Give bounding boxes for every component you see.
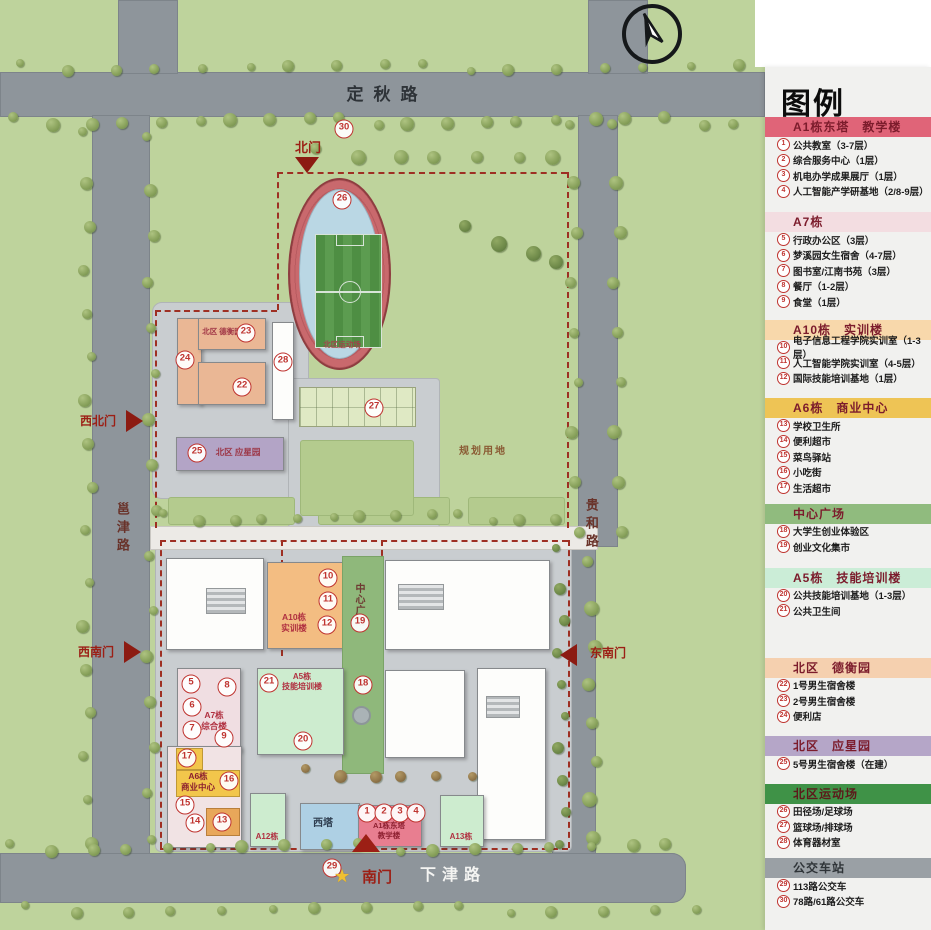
legend-item-12: 12国际技能培训基地（1层）: [765, 371, 931, 387]
compass-north-icon: [622, 4, 682, 64]
tree-icon: [78, 751, 88, 761]
tree-icon: [607, 425, 621, 439]
tree-icon: [163, 843, 173, 853]
tree-icon: [586, 717, 598, 729]
road-yongjin: [92, 115, 150, 857]
legend-item-label: 学校卫生所: [793, 419, 841, 433]
road-label-xiajin: 下津路: [398, 866, 508, 887]
legend-item-number: 25: [777, 757, 790, 770]
legend-item-number: 30: [777, 895, 790, 908]
legend-item-number: 21: [777, 604, 790, 617]
tree-icon: [565, 277, 576, 288]
tree-icon: [396, 847, 405, 856]
tree-icon: [282, 60, 294, 72]
label-yingxing: 北区 应星园: [208, 447, 268, 458]
legend-section: A10栋 实训楼10电子信息工程学院实训室（1-3层）11人工智能学院实训室（4…: [765, 320, 931, 387]
tree-icon: [78, 127, 87, 136]
legend-item-6: 6梦溪园女生宿舍（4-7层）: [765, 248, 931, 264]
tree-icon: [427, 151, 440, 164]
map-marker-21: 21: [260, 674, 279, 693]
map-marker-14: 14: [186, 814, 205, 833]
tree-icon: [468, 772, 477, 781]
tree-icon: [418, 59, 427, 68]
tree-icon: [471, 151, 483, 163]
tree-icon: [491, 236, 507, 252]
tree-icon: [351, 150, 366, 165]
map-marker-27: 27: [365, 399, 384, 418]
tree-icon: [147, 835, 156, 844]
tree-icon: [557, 680, 566, 689]
legend-item-label: 便利店: [793, 709, 822, 723]
tree-icon: [510, 116, 521, 127]
tree-icon: [545, 906, 557, 918]
map-marker-12: 12: [318, 616, 337, 635]
legend-item-label: 公共卫生间: [793, 604, 841, 618]
legend-item-number: 10: [777, 341, 790, 354]
tree-icon: [80, 664, 92, 676]
tree-icon: [293, 514, 302, 523]
legend-section-header: A5栋 技能培训楼: [765, 568, 931, 588]
map-marker-8: 8: [218, 678, 237, 697]
legend-item-number: 23: [777, 694, 790, 707]
tree-icon: [658, 111, 670, 123]
legend-item-number: 17: [777, 481, 790, 494]
legend-item-label: 5号男生宿舍楼（在建）: [793, 757, 893, 771]
tree-icon: [481, 116, 493, 128]
tree-icon: [612, 327, 623, 338]
tree-icon: [638, 63, 647, 72]
legend-item-10: 10电子信息工程学院实训室（1-3层）: [765, 340, 931, 356]
tree-icon: [394, 150, 408, 164]
tree-icon: [144, 551, 154, 561]
tree-icon: [426, 844, 439, 857]
map-marker-26: 26: [333, 191, 352, 210]
road-label-guihe: 贵和路: [582, 490, 599, 560]
tree-icon: [589, 112, 603, 126]
tree-icon: [78, 265, 89, 276]
map-marker-6: 6: [183, 698, 202, 717]
tree-icon: [728, 119, 738, 129]
legend-item-9: 9食堂（1层）: [765, 294, 931, 310]
boundary-south-top: [160, 540, 568, 542]
tree-icon: [600, 63, 610, 73]
tree-icon: [331, 60, 342, 71]
legend-item-label: 便利超市: [793, 434, 831, 448]
tree-icon: [247, 63, 255, 71]
tree-icon: [526, 246, 541, 261]
building-white-e2: [477, 668, 546, 840]
tree-icon: [330, 513, 338, 521]
legend-item-label: 行政办公区（3层）: [793, 233, 874, 247]
tree-icon: [142, 277, 153, 288]
map-marker-18: 18: [354, 676, 373, 695]
tree-icon: [82, 309, 92, 319]
legend-section: A6栋 商业中心13学校卫生所14便利超市15菜鸟驿站16小吃街17生活超市: [765, 398, 931, 496]
legend-item-number: 11: [777, 356, 790, 369]
legend-item-number: 13: [777, 419, 790, 432]
tree-icon: [144, 696, 156, 708]
boundary-south-east: [568, 540, 570, 848]
legend-item-17: 17生活超市: [765, 480, 931, 496]
label-a5: A5栋 技能培训楼: [276, 672, 328, 693]
legend-item-26: 26田径场/足球场: [765, 804, 931, 820]
map-marker-24: 24: [176, 351, 195, 370]
basketball-courts: [299, 387, 416, 427]
legend-title: 图例: [781, 79, 931, 117]
legend-item-label: 综合服务中心（1层）: [793, 153, 884, 167]
gate-north-icon: [295, 157, 319, 173]
football-field: [315, 234, 382, 348]
tree-icon: [85, 707, 96, 718]
legend-item-5: 5行政办公区（3层）: [765, 232, 931, 248]
legend-item-label: 78路/61路公交车: [793, 894, 864, 908]
legend-item-16: 16小吃街: [765, 465, 931, 481]
tree-icon: [123, 907, 134, 918]
legend-item-label: 公共教室（3-7层）: [793, 138, 873, 152]
tree-icon: [587, 842, 596, 851]
legend-item-label: 田径场/足球场: [793, 804, 853, 818]
tree-icon: [159, 509, 167, 517]
legend-section: 北区运动场26田径场/足球场27篮球场/排球场28体育器材室: [765, 784, 931, 851]
legend-item-label: 大学生创业体验区: [793, 524, 869, 538]
tree-icon: [308, 902, 320, 914]
tree-icon: [598, 906, 609, 917]
legend-item-label: 梦溪园女生宿舍（4-7层）: [793, 248, 902, 262]
legend-item-2: 2综合服务中心（1层）: [765, 153, 931, 169]
legend-item-label: 创业文化集市: [793, 540, 850, 554]
legend-item-number: 14: [777, 435, 790, 448]
legend-item-3: 3机电办学成果展厅（1层）: [765, 168, 931, 184]
legend-item-28: 28体育器材室: [765, 835, 931, 851]
road-label-dingqiu: 定秋路: [322, 84, 452, 106]
legend-item-label: 公共技能培训基地（1-3层）: [793, 588, 911, 602]
tree-icon: [549, 255, 563, 269]
legend-item-label: 1号男生宿舍楼: [793, 678, 855, 692]
tree-icon: [146, 459, 158, 471]
legend-item-label: 国际技能培训基地（1层）: [793, 371, 903, 385]
map-marker-9: 9: [215, 729, 234, 748]
legend-item-label: 113路公交车: [793, 879, 846, 893]
tree-icon: [46, 118, 60, 132]
tree-icon: [361, 902, 372, 913]
legend-item-number: 28: [777, 836, 790, 849]
tree-icon: [551, 64, 562, 75]
gate-label-southeast: 东南门: [582, 646, 634, 662]
legend-item-number: 16: [777, 466, 790, 479]
legend-item-24: 24便利店: [765, 709, 931, 725]
legend-item-label: 人工智能学院实训室（4-5层）: [793, 356, 921, 370]
legend-item-number: 8: [777, 280, 790, 293]
legend-item-number: 29: [777, 879, 790, 892]
tree-icon: [165, 906, 175, 916]
boundary-north-top: [277, 172, 567, 174]
tree-icon: [151, 369, 160, 378]
tree-icon: [507, 909, 515, 917]
tree-icon: [627, 839, 640, 852]
tree-icon: [84, 221, 96, 233]
legend-item-label: 菜鸟驿站: [793, 450, 831, 464]
legend-section-header: 北区 应星园: [765, 736, 931, 756]
tree-icon: [551, 115, 561, 125]
tree-icon: [591, 756, 602, 767]
tree-icon: [650, 905, 660, 915]
tree-icon: [512, 843, 523, 854]
tree-icon: [565, 120, 574, 129]
label-xita: 西塔: [308, 817, 338, 830]
area-label-track: 北区运动场: [316, 340, 368, 350]
legend-section: 公交车站29113路公交车3078路/61路公交车: [765, 858, 931, 909]
legend-item-label: 篮球场/排球场: [793, 820, 853, 834]
legend-item-13: 13学校卫生所: [765, 418, 931, 434]
tree-icon: [699, 120, 710, 131]
gate-northwest-icon: [126, 410, 143, 432]
legend-section-header: A7栋: [765, 212, 931, 232]
tree-icon: [618, 112, 631, 125]
page-corner: [755, 0, 931, 67]
tree-icon: [142, 788, 152, 798]
tree-icon: [552, 544, 560, 552]
tree-icon: [584, 601, 599, 616]
tree-icon: [80, 177, 93, 190]
legend-item-label: 餐厅（1-2层）: [793, 279, 854, 293]
tree-icon: [144, 184, 157, 197]
tree-icon: [614, 226, 627, 239]
legend-item-27: 27篮球场/排球场: [765, 819, 931, 835]
tree-icon: [230, 515, 241, 526]
tree-icon: [88, 844, 100, 856]
map-marker-13: 13: [213, 813, 232, 832]
tree-icon: [555, 840, 564, 849]
tree-icon: [301, 764, 310, 773]
road-stub-topleft: [118, 0, 178, 74]
boundary-north-west: [155, 310, 157, 528]
tree-icon: [198, 64, 207, 73]
tree-icon: [616, 526, 628, 538]
map-marker-23: 23: [237, 324, 256, 343]
tree-icon: [692, 905, 701, 914]
tree-icon: [45, 845, 58, 858]
map-marker-30: 30: [335, 120, 354, 139]
gate-label-north: 北门: [283, 140, 333, 157]
tree-icon: [612, 476, 625, 489]
tree-icon: [400, 117, 414, 131]
tree-icon: [78, 394, 91, 407]
legend-item-15: 15菜鸟驿站: [765, 449, 931, 465]
legend-item-label: 2号男生宿舍楼: [793, 694, 855, 708]
tree-icon: [616, 377, 626, 387]
legend-item-number: 3: [777, 169, 790, 182]
plaza-fountain: [352, 706, 371, 725]
road-label-yongjin: 邕津路: [113, 494, 130, 564]
stairs-1: [206, 588, 246, 614]
map-marker-22: 22: [233, 378, 252, 397]
legend-item-23: 232号男生宿舍楼: [765, 693, 931, 709]
legend-section: 中心广场18大学生创业体验区19创业文化集市: [765, 504, 931, 555]
stairs-2: [398, 584, 444, 610]
label-a10: A10栋 实训楼: [278, 612, 310, 634]
legend-item-number: 4: [777, 185, 790, 198]
tree-icon: [142, 413, 155, 426]
map-marker-11: 11: [319, 592, 338, 611]
goal-box-top: [336, 234, 364, 246]
tree-icon: [550, 514, 561, 525]
tree-icon: [607, 119, 617, 129]
tree-icon: [390, 510, 401, 521]
tree-icon: [427, 509, 437, 519]
map-marker-28: 28: [274, 353, 293, 372]
legend-item-number: 22: [777, 679, 790, 692]
legend-item-11: 11人工智能学院实训室（4-5层）: [765, 355, 931, 371]
tree-icon: [571, 227, 583, 239]
label-a13: A13栋: [446, 832, 476, 842]
gate-south-icon: [352, 834, 380, 852]
legend-item-label: 机电办学成果展厅（1层）: [793, 169, 903, 183]
tree-icon: [413, 901, 423, 911]
tree-icon: [263, 113, 276, 126]
map-marker-5: 5: [182, 675, 201, 694]
tree-icon: [574, 378, 583, 387]
legend-section: A5栋 技能培训楼20公共技能培训基地（1-3层）21公共卫生间: [765, 568, 931, 619]
boundary-north-jog: [155, 310, 277, 312]
legend-item-number: 20: [777, 589, 790, 602]
gate-label-northwest: 西北门: [72, 414, 124, 430]
legend-item-number: 9: [777, 295, 790, 308]
map-marker-17: 17: [178, 749, 197, 768]
map-marker-25: 25: [188, 444, 207, 463]
boundary-north-jog-v: [277, 172, 279, 310]
gate-label-southwest: 西南门: [70, 645, 122, 661]
gate-southwest-icon: [124, 641, 141, 663]
legend-item-number: 26: [777, 805, 790, 818]
tree-icon: [111, 65, 122, 76]
tree-icon: [370, 771, 382, 783]
tree-icon: [467, 67, 475, 75]
tree-icon: [146, 323, 156, 333]
map-marker-7: 7: [183, 721, 202, 740]
tree-icon: [469, 843, 481, 855]
tree-icon: [514, 152, 525, 163]
legend-item-number: 5: [777, 233, 790, 246]
tree-icon: [607, 277, 619, 289]
legend-item-label: 生活超市: [793, 481, 831, 495]
legend-item-label: 图书室/江南书苑（3层）: [793, 264, 896, 278]
tree-icon: [148, 230, 160, 242]
tree-icon: [304, 112, 316, 124]
tree-icon: [5, 839, 14, 848]
tree-icon: [142, 132, 151, 141]
legend-section: A7栋5行政办公区（3层）6梦溪园女生宿舍（4-7层）7图书室/江南书苑（3层）…: [765, 212, 931, 310]
mid-campus-road: [150, 526, 598, 550]
tree-icon: [321, 839, 332, 850]
tree-icon: [223, 113, 237, 127]
legend-item-number: 1: [777, 138, 790, 151]
legend-item-label: 小吃街: [793, 465, 822, 479]
legend-section-header: A6栋 商业中心: [765, 398, 931, 418]
legend-section: 北区 德衡园221号男生宿舍楼232号男生宿舍楼24便利店: [765, 658, 931, 725]
tree-icon: [269, 905, 277, 913]
map-marker-4: 4: [407, 804, 426, 823]
map-marker-10: 10: [319, 569, 338, 588]
label-a12: A12栋: [252, 832, 282, 842]
legend-item-14: 14便利超市: [765, 434, 931, 450]
tree-icon: [559, 615, 570, 626]
tree-icon: [140, 650, 153, 663]
tree-icon: [569, 328, 579, 338]
legend-item-22: 221号男生宿舍楼: [765, 678, 931, 694]
legend-item-8: 8餐厅（1-2层）: [765, 279, 931, 295]
legend-item-20: 20公共技能培训基地（1-3层）: [765, 588, 931, 604]
legend-item-4: 4人工智能产学研基地（2/8-9层）: [765, 184, 931, 200]
legend-section: 北区 应星园255号男生宿舍楼（在建）: [765, 736, 931, 772]
tree-icon: [85, 578, 94, 587]
legend-item-7: 7图书室/江南书苑（3层）: [765, 263, 931, 279]
tree-icon: [235, 840, 248, 853]
campus-site-plan: 定秋路 下津路 邕津路 贵和路 规划用地 北区运动场 北区 德衡园 北区 应星园…: [0, 0, 765, 930]
legend-item-label: 体育器材室: [793, 835, 841, 849]
tree-icon: [83, 795, 92, 804]
legend-item-1: 1公共教室（3-7层）: [765, 137, 931, 153]
tree-icon: [80, 525, 90, 535]
tree-icon: [87, 352, 96, 361]
legend-section-header: 公交车站: [765, 858, 931, 878]
legend-sections: A1栋东塔 教学楼1公共教室（3-7层）2综合服务中心（1层）3机电办学成果展厅…: [765, 117, 931, 909]
tree-icon: [453, 509, 462, 518]
map-marker-16: 16: [220, 772, 239, 791]
tree-icon: [149, 606, 158, 615]
legend-item-30: 3078路/61路公交车: [765, 894, 931, 910]
tree-icon: [557, 775, 568, 786]
tree-icon: [156, 117, 167, 128]
legend-item-number: 12: [777, 372, 790, 385]
tree-icon: [545, 150, 560, 165]
legend-section: A1栋东塔 教学楼1公共教室（3-7层）2综合服务中心（1层）3机电办学成果展厅…: [765, 117, 931, 199]
building-white-e1: [385, 670, 465, 758]
tree-icon: [659, 838, 671, 850]
tree-icon: [565, 426, 578, 439]
tree-icon: [582, 678, 595, 691]
tree-icon: [374, 120, 384, 130]
legend-section-header: 北区 德衡园: [765, 658, 931, 678]
legend-item-label: 食堂（1层）: [793, 295, 846, 309]
legend-item-number: 27: [777, 820, 790, 833]
map-marker-20: 20: [294, 732, 313, 751]
gate-label-south: 南门: [352, 868, 402, 888]
stairs-3: [486, 696, 520, 718]
tree-icon: [8, 112, 18, 122]
legend-item-19: 19创业文化集市: [765, 539, 931, 555]
tree-icon: [582, 792, 597, 807]
track-infield: [299, 189, 380, 359]
legend-item-number: 2: [777, 154, 790, 167]
tree-icon: [380, 59, 390, 69]
legend-item-number: 24: [777, 710, 790, 723]
tree-icon: [116, 117, 128, 129]
legend-item-number: 6: [777, 249, 790, 262]
tree-icon: [86, 118, 99, 131]
tree-icon: [513, 514, 525, 526]
tree-icon: [567, 176, 580, 189]
tree-icon: [120, 844, 131, 855]
legend-item-number: 18: [777, 525, 790, 538]
tree-icon: [687, 62, 695, 70]
label-a6: A6栋 商业中心: [176, 771, 220, 793]
tree-icon: [609, 176, 623, 190]
tree-icon: [206, 843, 215, 852]
boundary-north-east: [567, 172, 569, 528]
tree-icon: [196, 116, 206, 126]
tree-icon: [149, 742, 160, 753]
legend-section-header: 中心广场: [765, 504, 931, 524]
